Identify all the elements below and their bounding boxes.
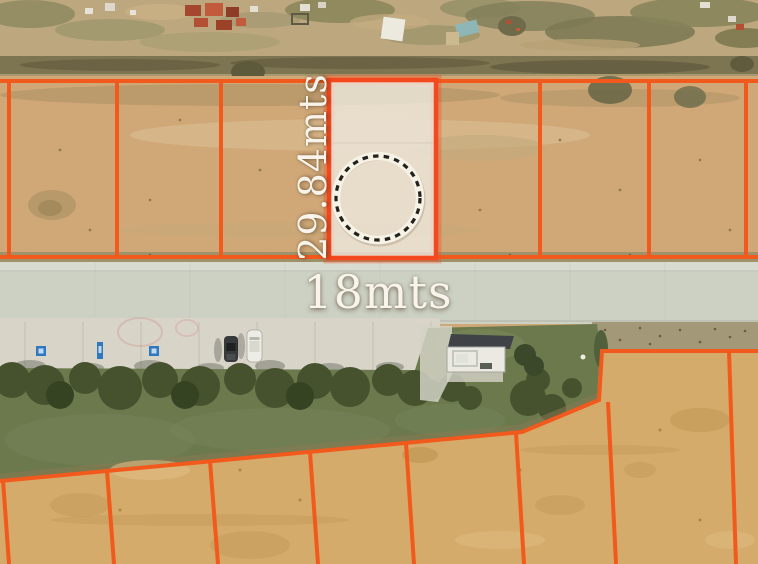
accessible-parking-icon [36,346,46,356]
gravel-strip-right [592,322,758,350]
map-canvas: 29.84mts 18mts [0,0,758,564]
accessible-parking-icon [149,346,159,356]
satellite-map [0,0,758,564]
road [0,262,758,324]
car-dark [214,336,238,362]
accessible-parking-icon [97,342,103,359]
car-white [237,330,262,362]
